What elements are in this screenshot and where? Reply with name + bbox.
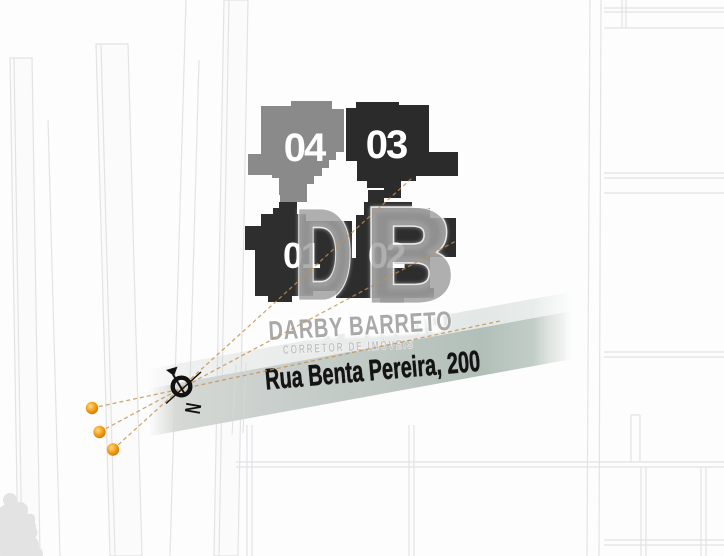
svg-text:03: 03 — [366, 123, 407, 167]
svg-text:04: 04 — [284, 126, 327, 170]
svg-text:D: D — [295, 184, 352, 325]
